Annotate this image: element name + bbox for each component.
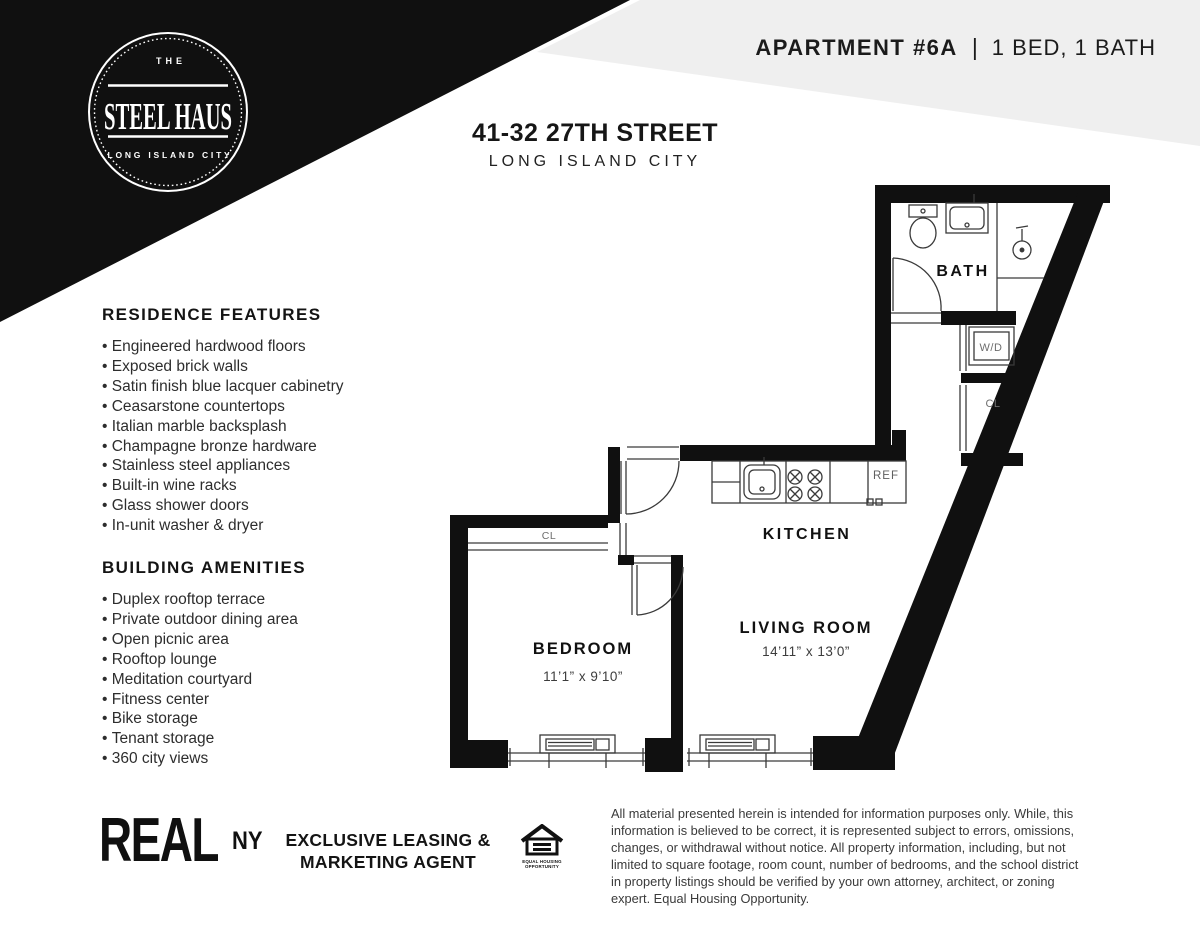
amenity-item: Meditation courtyard xyxy=(102,670,432,690)
living-room-dims: 14’11” x 13’0” xyxy=(762,644,850,659)
steel-haus-logo: THE STEEL HAUS LONG ISLAND CITY xyxy=(86,30,250,194)
equal-housing-text2: OPPORTUNITY xyxy=(525,864,559,869)
apartment-header: APARTMENT #6A | 1 BED, 1 BATH xyxy=(755,34,1156,61)
bed-bath-info: 1 BED, 1 BATH xyxy=(992,35,1156,61)
kitchen-sink-icon xyxy=(744,457,780,499)
hall-closet-label: CL xyxy=(985,398,1000,410)
building-amenities-list: Duplex rooftop terrace Private outdoor d… xyxy=(102,590,432,769)
floor-plan: BATH W/D CL REF KITCHEN CL BEDROOM 11’1”… xyxy=(440,180,1120,780)
stove-icon xyxy=(788,470,822,501)
amenity-item: Fitness center xyxy=(102,690,432,710)
agent-line1: EXCLUSIVE LEASING & xyxy=(281,830,495,852)
feature-item: Ceasarstone countertops xyxy=(102,397,432,417)
feature-item: Engineered hardwood floors xyxy=(102,337,432,357)
header-separator: | xyxy=(972,34,978,61)
address-block: 41-32 27TH STREET LONG ISLAND CITY xyxy=(445,119,745,171)
bath-door xyxy=(891,258,941,323)
amenity-item: 360 city views xyxy=(102,749,432,769)
agent-text: EXCLUSIVE LEASING & MARKETING AGENT xyxy=(281,830,495,873)
bedroom-dims: 11’1” x 9’10” xyxy=(543,669,623,684)
amenity-item: Duplex rooftop terrace xyxy=(102,590,432,610)
building-amenities: BUILDING AMENITIES Duplex rooftop terrac… xyxy=(102,558,432,769)
feature-item: Stainless steel appliances xyxy=(102,456,432,476)
equal-housing-logo: EQUAL HOUSING OPPORTUNITY xyxy=(519,824,565,870)
flyer-page: THE STEEL HAUS LONG ISLAND CITY APARTMEN… xyxy=(0,0,1200,927)
living-room-label: LIVING ROOM xyxy=(740,619,873,637)
feature-item: Satin finish blue lacquer cabinetry xyxy=(102,377,432,397)
amenity-item: Private outdoor dining area xyxy=(102,610,432,630)
washer-dryer-label: W/D xyxy=(980,342,1003,354)
feature-item: In-unit washer & dryer xyxy=(102,516,432,536)
equal-housing-body xyxy=(527,839,557,854)
logo-location: LONG ISLAND CITY xyxy=(107,150,232,160)
amenity-item: Bike storage xyxy=(102,709,432,729)
equal-housing-bar1 xyxy=(533,843,551,846)
feature-item: Glass shower doors xyxy=(102,496,432,516)
bedroom-closet-doors xyxy=(468,543,608,550)
bedroom-closet-label: CL xyxy=(542,530,556,542)
legal-disclaimer: All material presented herein is intende… xyxy=(611,806,1089,907)
apartment-number: APARTMENT #6A xyxy=(755,35,957,61)
residence-features-list: Engineered hardwood floors Exposed brick… xyxy=(102,337,432,536)
bath-label: BATH xyxy=(936,263,989,280)
kitchen-label: KITCHEN xyxy=(763,526,852,543)
fridge-label: REF xyxy=(873,470,899,482)
feature-item: Italian marble backsplash xyxy=(102,417,432,437)
bedroom-label: BEDROOM xyxy=(533,640,633,658)
residence-features: RESIDENCE FEATURES Engineered hardwood f… xyxy=(102,305,432,536)
entry-door xyxy=(620,447,679,555)
realny-logo: REAL NY xyxy=(99,816,267,866)
agent-line2: MARKETING AGENT xyxy=(281,852,495,874)
living-room-window xyxy=(687,735,813,768)
residence-features-title: RESIDENCE FEATURES xyxy=(102,305,432,325)
equal-housing-bar2 xyxy=(533,848,551,851)
building-amenities-title: BUILDING AMENITIES xyxy=(102,558,432,578)
realny-logo-ny: NY xyxy=(232,816,263,856)
feature-item: Exposed brick walls xyxy=(102,357,432,377)
address-city: LONG ISLAND CITY xyxy=(445,153,745,171)
logo-name: STEEL HAUS xyxy=(104,96,232,138)
bedroom-window xyxy=(508,735,645,768)
amenity-item: Rooftop lounge xyxy=(102,650,432,670)
fridge-handle xyxy=(867,499,882,505)
address-street: 41-32 27TH STREET xyxy=(445,119,745,148)
hall-closet-doors xyxy=(960,385,966,451)
toilet-icon xyxy=(909,205,937,248)
realny-logo-real: REAL xyxy=(99,816,218,866)
feature-item: Champagne bronze hardware xyxy=(102,437,432,457)
logo-the: THE xyxy=(156,56,186,66)
feature-item: Built-in wine racks xyxy=(102,476,432,496)
amenity-item: Open picnic area xyxy=(102,630,432,650)
amenity-item: Tenant storage xyxy=(102,729,432,749)
